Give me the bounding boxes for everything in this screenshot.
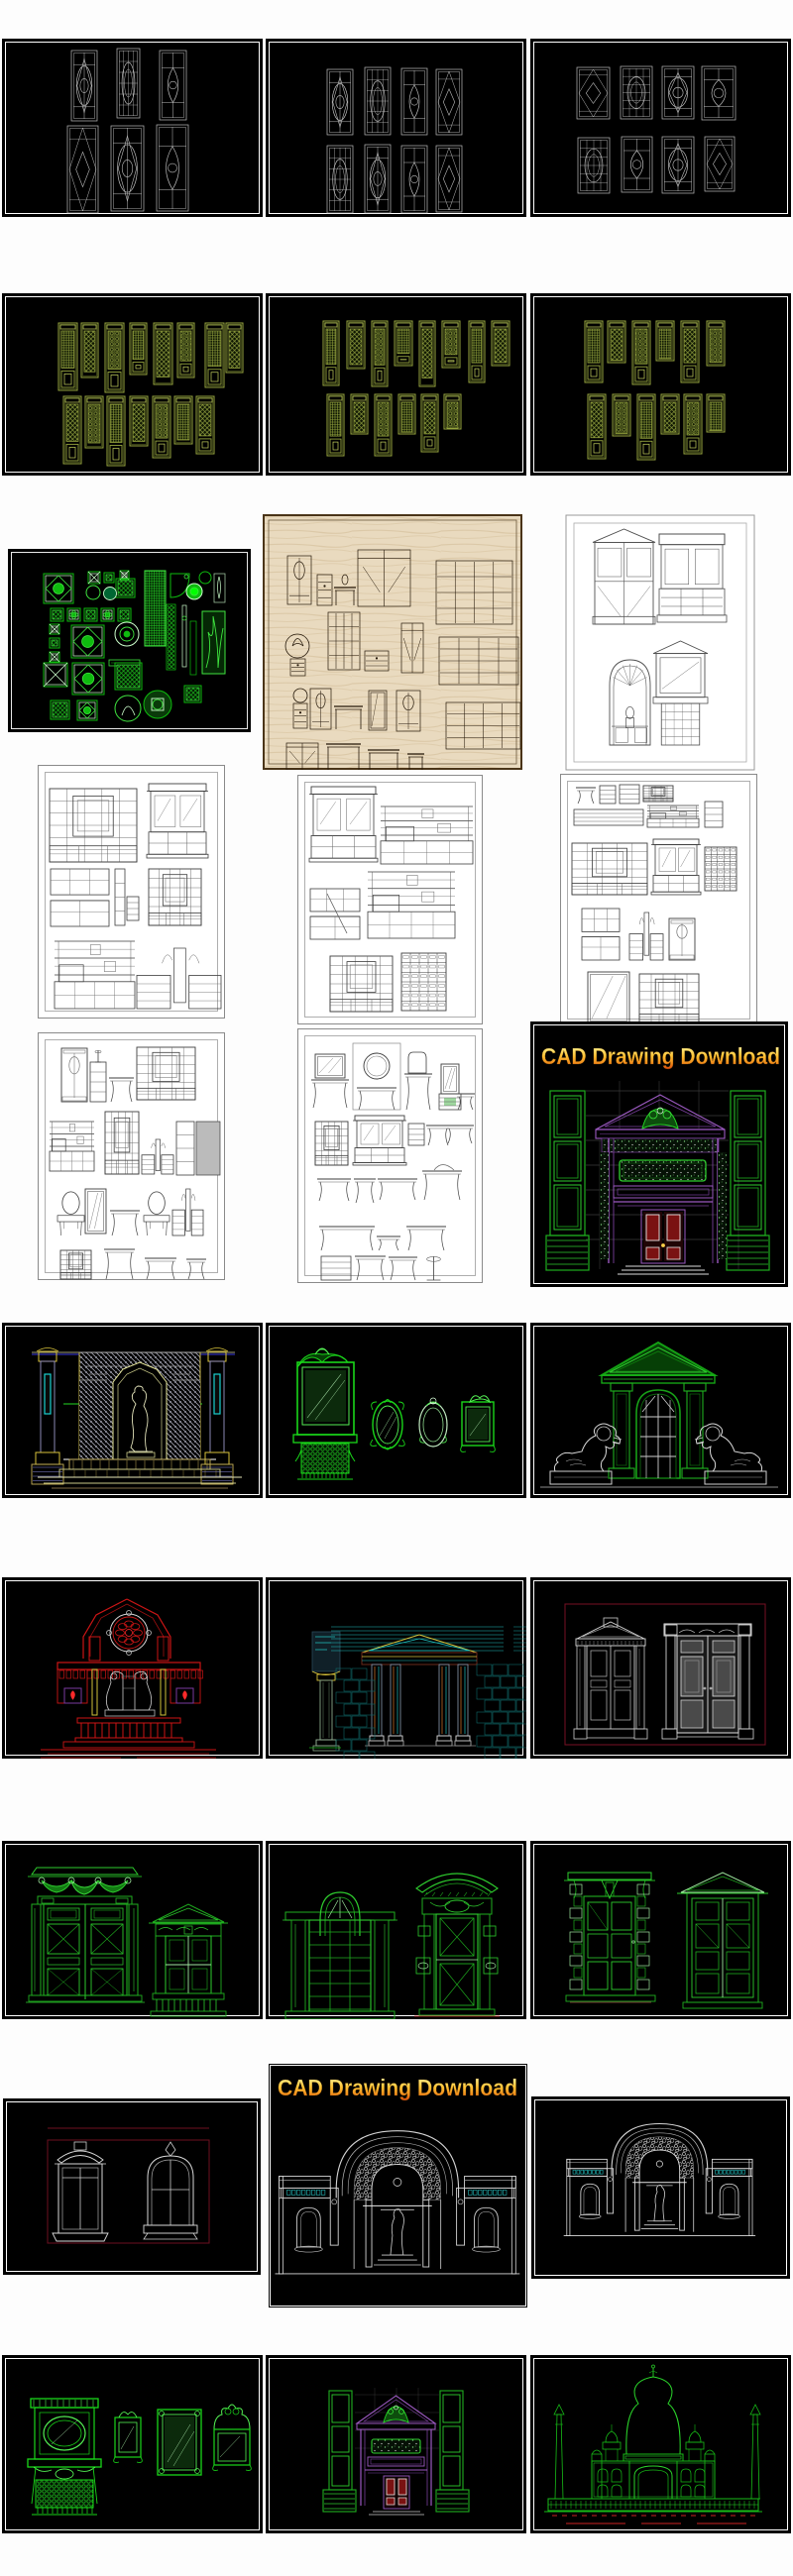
svg-text:CAD Drawing Download: CAD Drawing Download	[278, 2075, 517, 2100]
svg-text:CAD Drawing Download: CAD Drawing Download	[541, 1043, 780, 1069]
